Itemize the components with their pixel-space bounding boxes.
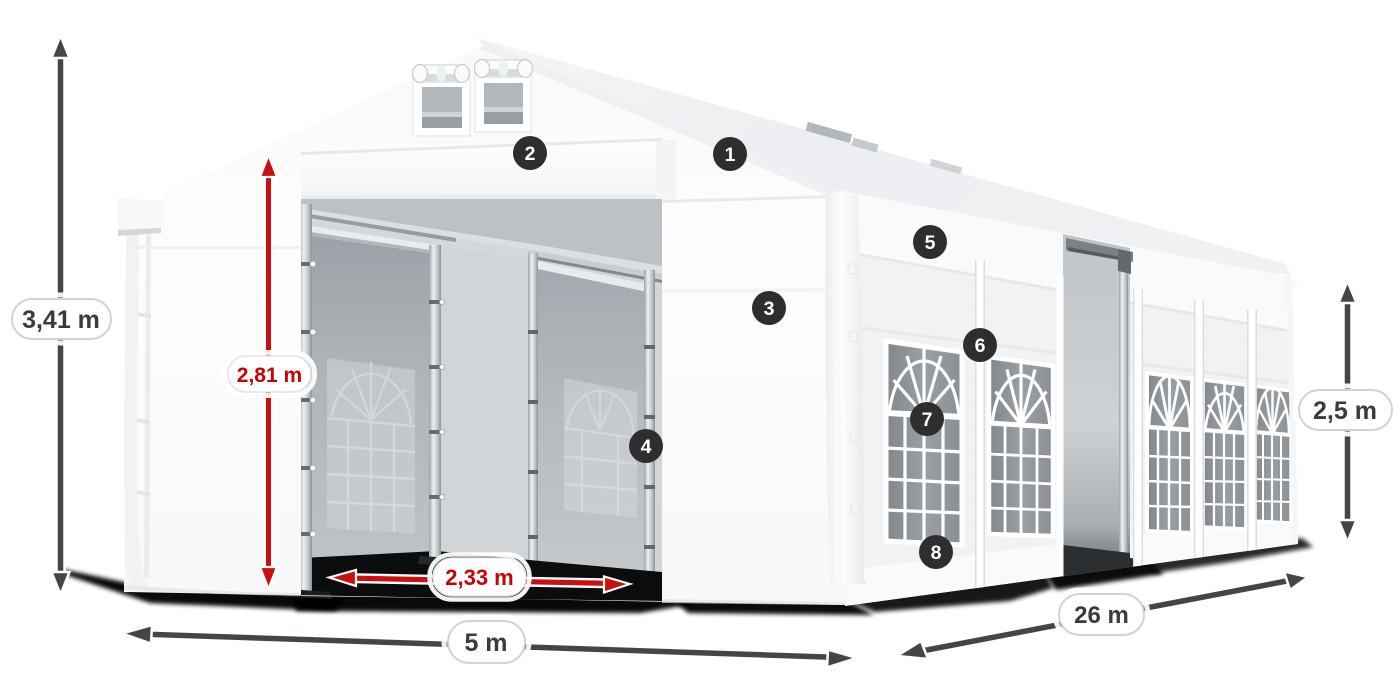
svg-text:2,5 m: 2,5 m xyxy=(1313,397,1377,425)
svg-text:8: 8 xyxy=(931,542,942,564)
svg-text:1: 1 xyxy=(725,144,736,166)
svg-text:5: 5 xyxy=(925,232,936,254)
svg-text:3: 3 xyxy=(764,298,775,320)
svg-text:5 m: 5 m xyxy=(464,629,507,657)
svg-text:2: 2 xyxy=(525,143,536,165)
svg-text:7: 7 xyxy=(922,409,933,431)
svg-text:6: 6 xyxy=(975,335,986,357)
svg-text:4: 4 xyxy=(641,436,652,458)
svg-text:26 m: 26 m xyxy=(1074,602,1129,629)
svg-text:3,41 m: 3,41 m xyxy=(22,306,100,334)
svg-text:2,81 m: 2,81 m xyxy=(237,364,302,387)
svg-text:2,33 m: 2,33 m xyxy=(445,565,514,590)
